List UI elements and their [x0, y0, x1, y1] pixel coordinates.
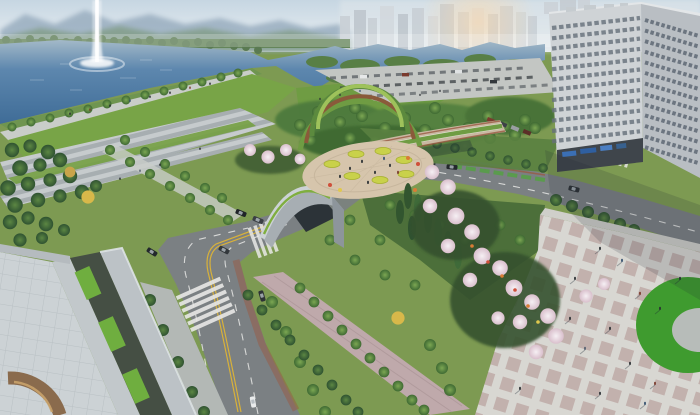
rendering-canvas: [0, 0, 700, 415]
autumn-tree: [81, 190, 94, 203]
fountain-splash: [80, 58, 114, 68]
park-rendering: Aerial architectural rendering of a lake…: [0, 0, 700, 415]
autumn-tree-2: [391, 311, 404, 324]
